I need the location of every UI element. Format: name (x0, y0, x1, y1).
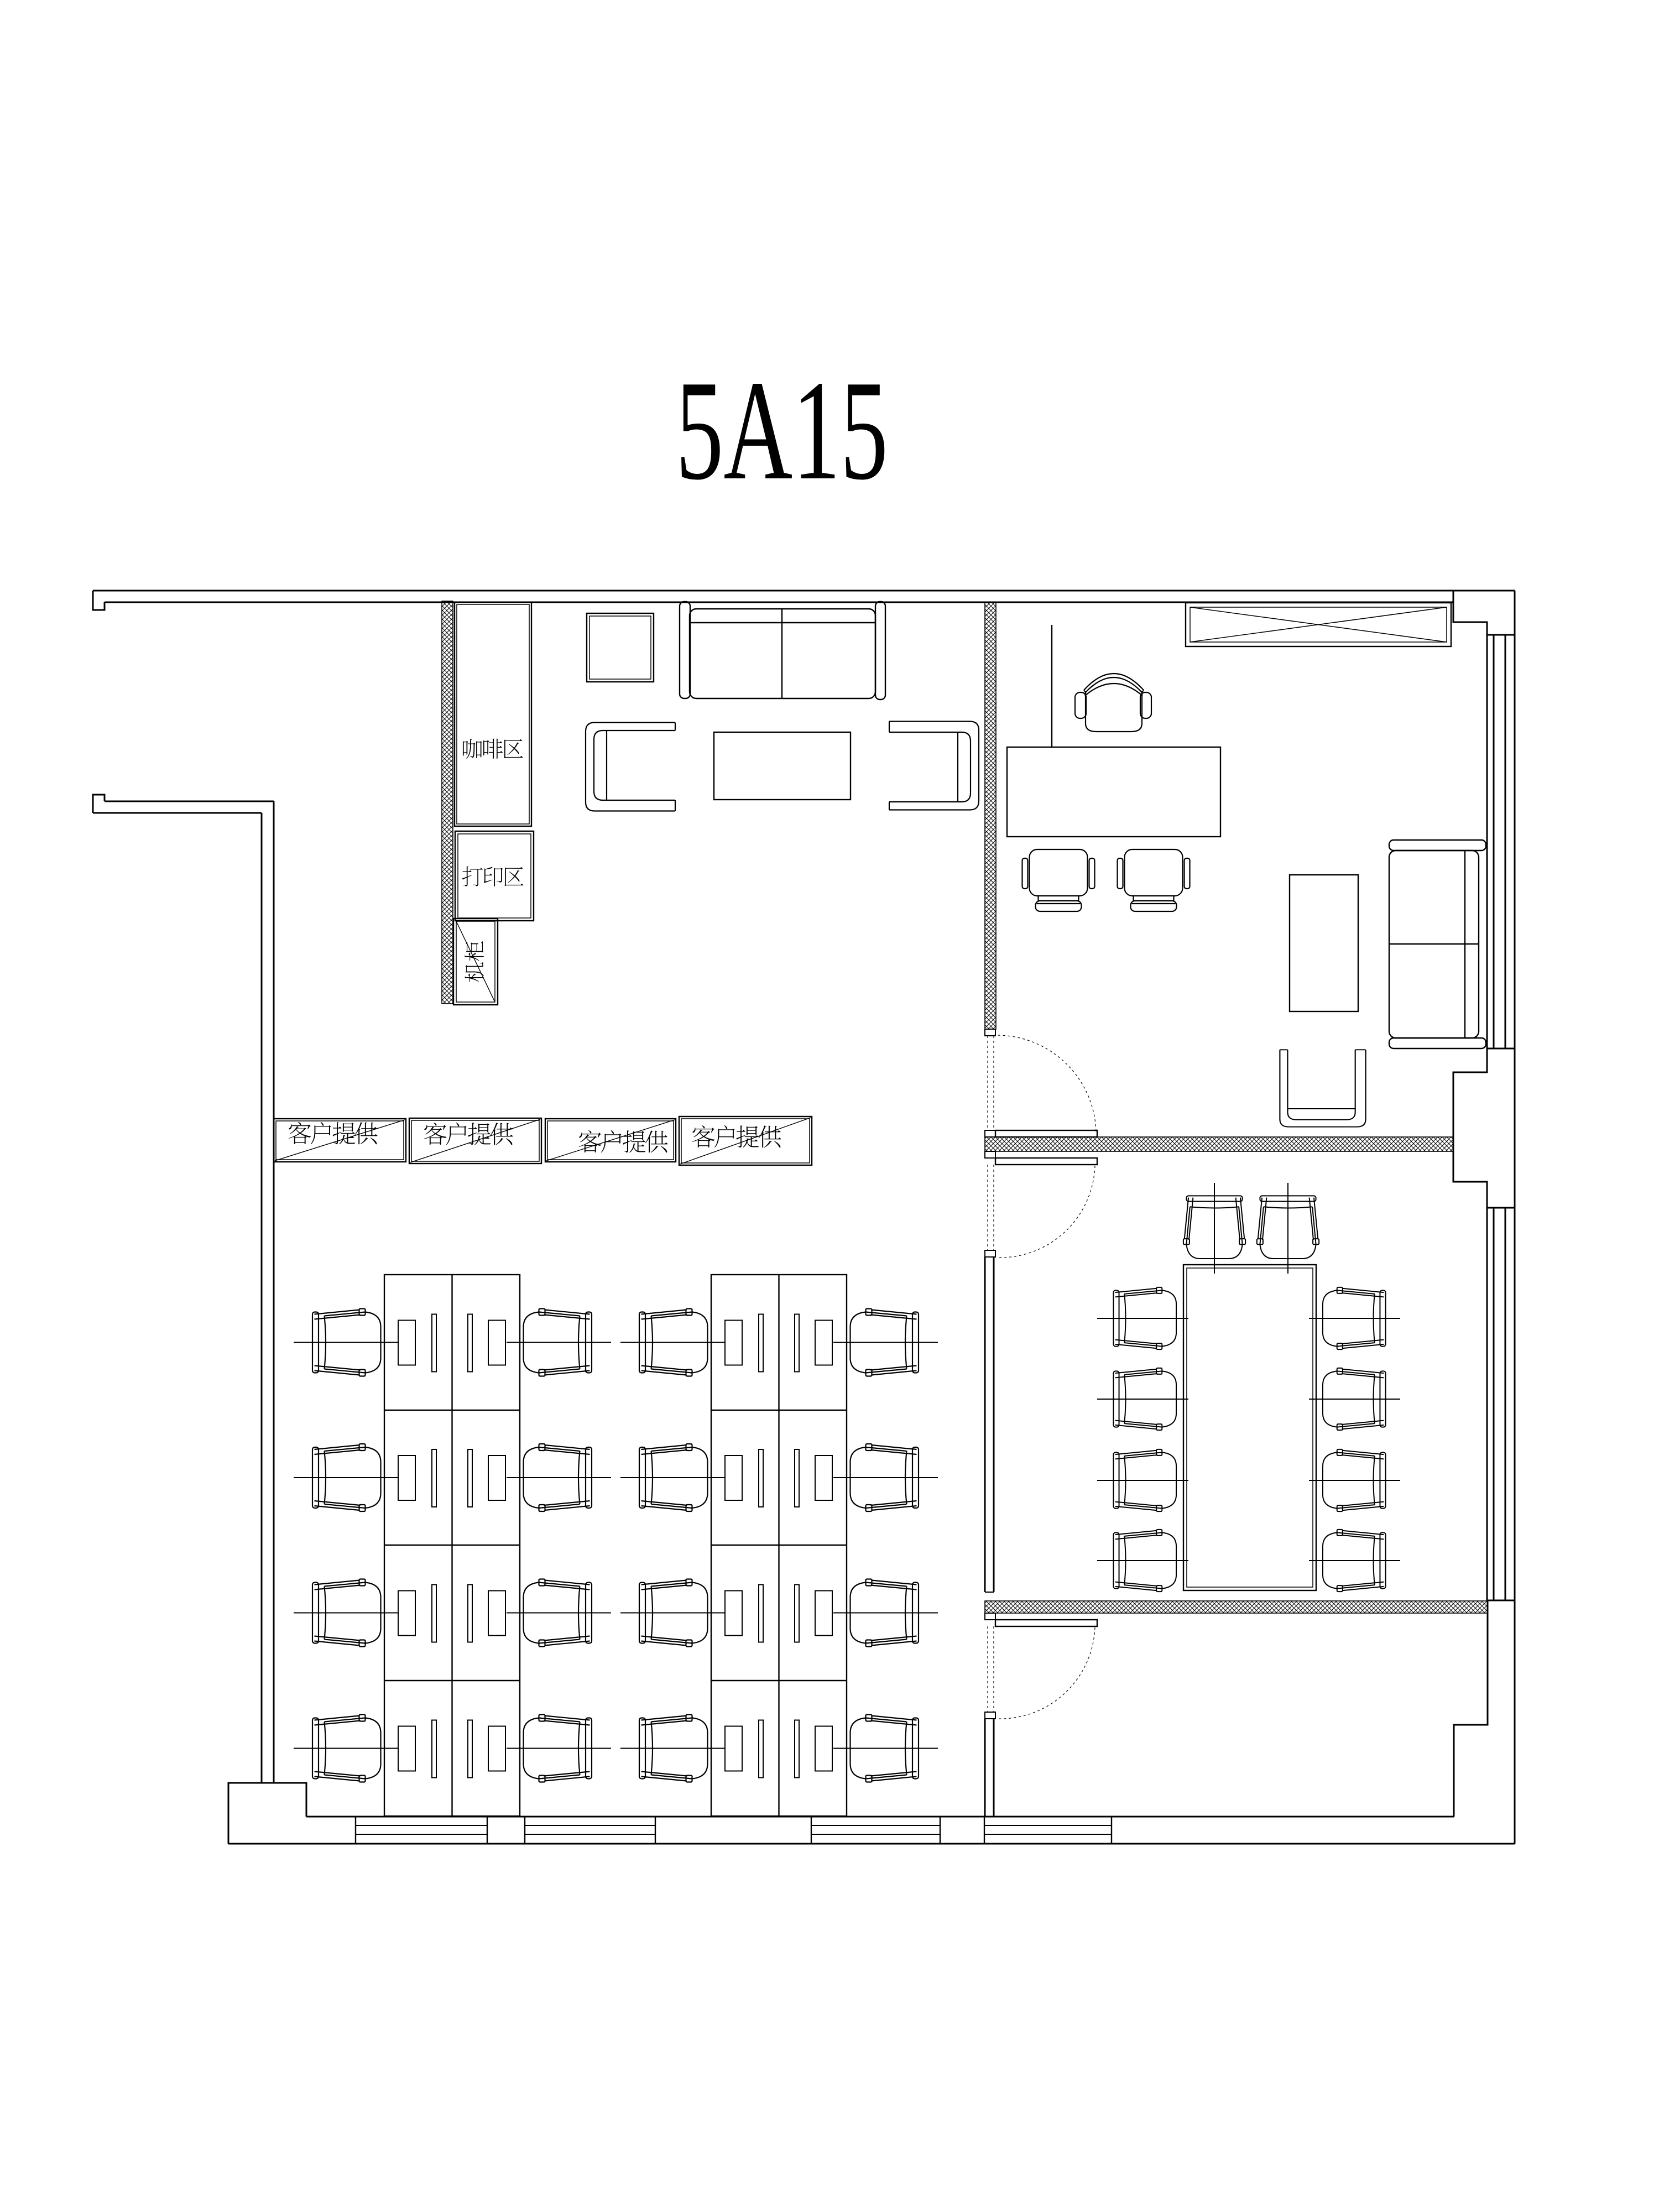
svg-text:5A15: 5A15 (676, 351, 888, 510)
